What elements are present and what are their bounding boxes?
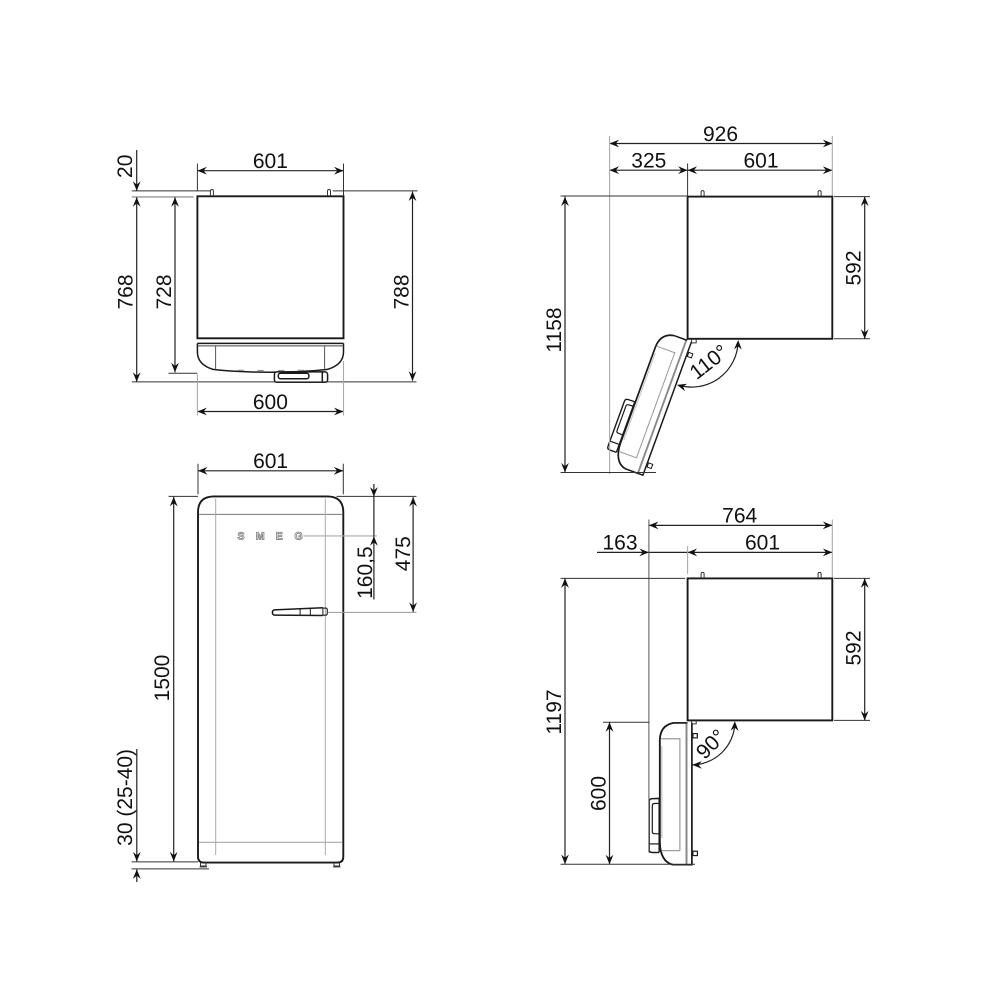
svg-text:G: G — [295, 531, 303, 543]
svg-text:728: 728 — [153, 274, 176, 309]
svg-text:325: 325 — [631, 150, 666, 173]
svg-text:30 (25-40): 30 (25-40) — [114, 749, 137, 846]
svg-text:600: 600 — [588, 776, 611, 811]
svg-text:1158: 1158 — [543, 307, 566, 352]
svg-text:20: 20 — [114, 155, 137, 178]
svg-text:E: E — [276, 531, 283, 543]
svg-text:M: M — [256, 531, 265, 543]
svg-text:90°: 90° — [692, 725, 731, 764]
svg-text:764: 764 — [722, 505, 757, 528]
svg-text:S: S — [237, 531, 244, 543]
svg-text:592: 592 — [843, 250, 866, 285]
svg-text:768: 768 — [114, 274, 137, 309]
svg-text:475: 475 — [392, 536, 415, 571]
svg-text:601: 601 — [253, 450, 288, 473]
svg-text:1197: 1197 — [543, 689, 566, 734]
svg-text:926: 926 — [703, 123, 738, 146]
svg-text:601: 601 — [743, 150, 778, 173]
svg-text:601: 601 — [745, 532, 780, 555]
svg-text:600: 600 — [253, 391, 288, 414]
svg-text:788: 788 — [391, 274, 414, 309]
svg-text:163: 163 — [602, 532, 637, 555]
svg-text:601: 601 — [253, 150, 288, 173]
svg-text:160,5: 160,5 — [354, 546, 377, 599]
svg-text:592: 592 — [843, 630, 866, 665]
svg-text:1500: 1500 — [151, 655, 174, 702]
svg-text:110°: 110° — [686, 340, 733, 384]
